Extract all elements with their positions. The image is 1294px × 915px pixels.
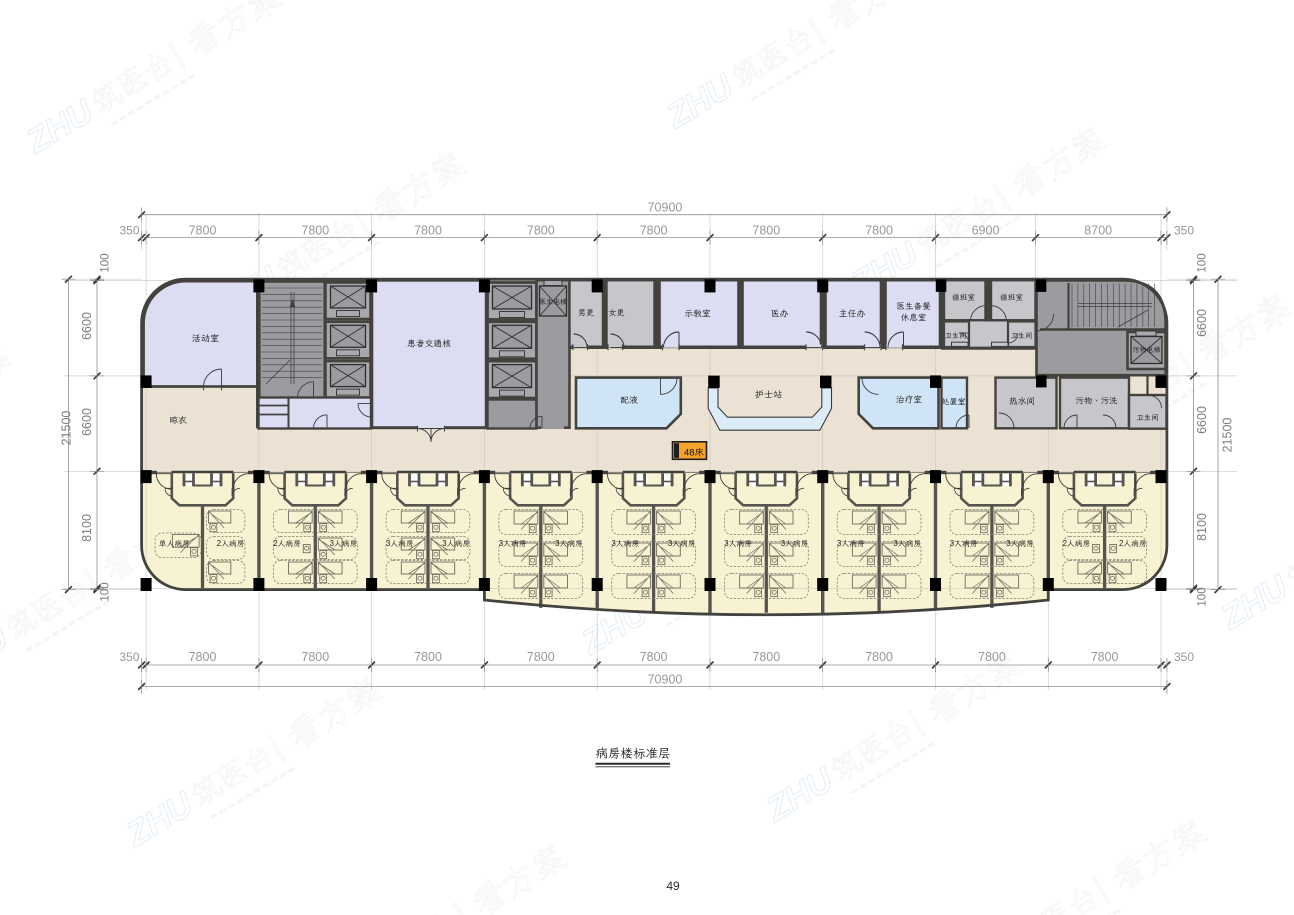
svg-text:3: 3 [612,539,616,548]
svg-text:70900: 70900 [648,201,683,215]
svg-text:7800: 7800 [865,223,893,237]
svg-text:3: 3 [893,539,897,548]
svg-text:7800: 7800 [640,650,668,664]
svg-text:21500: 21500 [1220,418,1234,453]
svg-text:2: 2 [273,539,277,548]
svg-text:2: 2 [1119,539,1123,548]
svg-text:100: 100 [1197,253,1209,272]
svg-text:48: 48 [684,448,695,459]
svg-text:7800: 7800 [752,650,780,664]
svg-text:3: 3 [386,539,390,548]
svg-text:7800: 7800 [752,223,780,237]
svg-text:350: 350 [1174,650,1194,664]
svg-text:3: 3 [724,539,728,548]
svg-text:350: 350 [120,223,140,237]
svg-text:7800: 7800 [865,650,893,664]
svg-text:8100: 8100 [80,514,94,542]
svg-text:3: 3 [950,539,954,548]
svg-text:3: 3 [499,539,503,548]
svg-text:100: 100 [1197,587,1209,606]
svg-text:7800: 7800 [189,650,217,664]
svg-text:3: 3 [330,539,334,548]
svg-text:7800: 7800 [640,223,668,237]
svg-text:7800: 7800 [527,223,555,237]
svg-text:6600: 6600 [1195,406,1209,434]
svg-text:3: 3 [442,539,446,548]
svg-text:49: 49 [666,879,680,893]
svg-text:7800: 7800 [527,650,555,664]
svg-text:3: 3 [781,539,785,548]
svg-text:6900: 6900 [972,223,1000,237]
svg-text:7800: 7800 [414,223,442,237]
svg-text:8100: 8100 [1195,513,1209,541]
svg-text:350: 350 [1174,223,1194,237]
svg-text:7800: 7800 [301,223,329,237]
svg-text:7800: 7800 [978,650,1006,664]
svg-text:70900: 70900 [648,672,683,686]
svg-text:2: 2 [1063,539,1067,548]
svg-text:2: 2 [217,539,221,548]
svg-text:3: 3 [1006,539,1010,548]
svg-text:100: 100 [100,253,112,272]
svg-text:3: 3 [837,539,841,548]
svg-text:8700: 8700 [1084,223,1112,237]
svg-text:7800: 7800 [414,650,442,664]
svg-text:3: 3 [668,539,672,548]
svg-text:350: 350 [120,650,140,664]
svg-text:3: 3 [555,539,559,548]
svg-text:100: 100 [100,582,112,601]
svg-text:7800: 7800 [1091,650,1119,664]
svg-text:7800: 7800 [301,650,329,664]
svg-text:6600: 6600 [1195,309,1209,337]
svg-text:6600: 6600 [80,312,94,340]
svg-text:6600: 6600 [80,408,94,436]
svg-text:7800: 7800 [189,223,217,237]
svg-text:21500: 21500 [59,411,73,446]
